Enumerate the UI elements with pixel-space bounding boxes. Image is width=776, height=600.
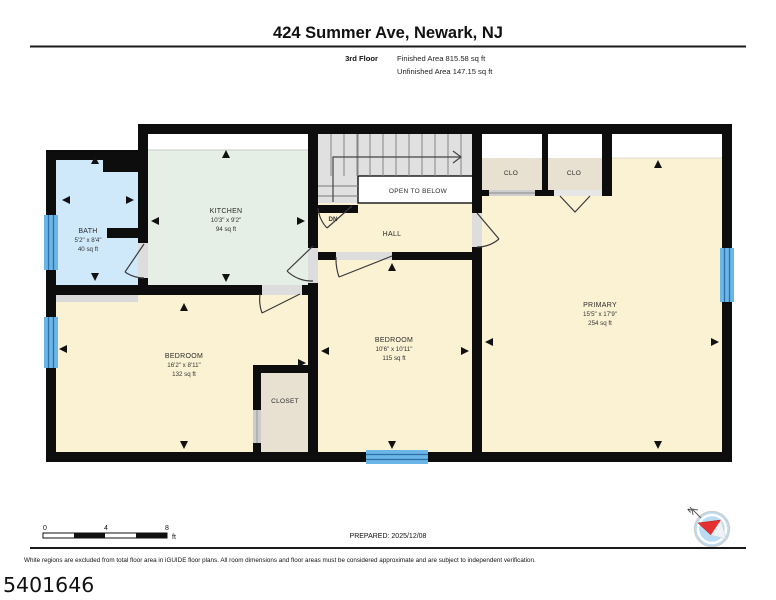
bath-floor bbox=[56, 160, 138, 285]
prepared-date: PREPARED: 2025/12/08 bbox=[350, 533, 427, 540]
clo2-threshold bbox=[554, 190, 602, 196]
wall-closet-left-b bbox=[253, 443, 261, 452]
room-area: 115 sq ft bbox=[382, 355, 406, 362]
wall-primary-lower bbox=[472, 247, 482, 452]
scale-unit: ft bbox=[172, 534, 176, 541]
room-dims: 15'5" x 17'9" bbox=[583, 311, 617, 318]
room-area: 132 sq ft bbox=[172, 371, 196, 378]
page-title: 424 Summer Ave, Newark, NJ bbox=[273, 24, 503, 42]
clo2-label: CLO bbox=[567, 170, 581, 177]
wall-bath-top bbox=[46, 150, 148, 160]
unfinished-area-label: Unfinished Area 147.15 sq ft bbox=[397, 67, 493, 76]
kitchen-doorway bbox=[308, 248, 318, 283]
room-name: BATH bbox=[78, 228, 97, 235]
closet-floor bbox=[261, 373, 308, 452]
floor-plan-page: 424 Summer Ave, Newark, NJ 3rd Floor Fin… bbox=[0, 0, 776, 600]
closet-label: CLOSET bbox=[271, 398, 299, 405]
wall-center-upper bbox=[308, 134, 318, 248]
stairs-landing bbox=[318, 176, 358, 207]
scale-bar: 0 4 8 ft bbox=[43, 525, 176, 541]
wall-clo1-stub-l bbox=[482, 190, 489, 196]
wall-hall-bedroom-a bbox=[318, 252, 336, 260]
room-area: 254 sq ft bbox=[588, 320, 612, 327]
primary-doorway bbox=[472, 213, 482, 247]
clo1-label: CLO bbox=[504, 170, 518, 177]
wall-clo2-stub-l bbox=[547, 190, 554, 196]
clo1-unfinished bbox=[482, 134, 542, 158]
header-divider bbox=[30, 46, 746, 48]
room-dims: 10'6" x 10'11" bbox=[376, 346, 413, 353]
room-name: KITCHEN bbox=[210, 208, 243, 215]
stairs-upper-run bbox=[318, 134, 472, 176]
stairs-dn-label: DN bbox=[329, 216, 338, 223]
primary-window bbox=[720, 248, 734, 302]
clo2-unfinished bbox=[547, 134, 602, 158]
bedroom-mid-window bbox=[366, 450, 428, 464]
bath-window bbox=[44, 215, 58, 270]
north-arrow-icon bbox=[692, 509, 701, 518]
floor-plan-canvas: 424 Summer Ave, Newark, NJ 3rd Floor Fin… bbox=[0, 0, 776, 600]
floor-label: 3rd Floor bbox=[345, 54, 378, 63]
scale-bar-seg2 bbox=[136, 533, 167, 538]
disclaimer-text: White regions are excluded from total fl… bbox=[24, 557, 536, 564]
room-dims: 10'3" x 9'2" bbox=[211, 217, 242, 224]
room-area: 94 sq ft bbox=[216, 226, 237, 233]
scale-bar-seg1 bbox=[74, 533, 105, 538]
wall-kitchen-bedroom-a bbox=[46, 285, 262, 295]
bedroom-left-window bbox=[44, 317, 58, 368]
wall-hall-bedroom-b bbox=[392, 252, 472, 260]
wall-top bbox=[138, 124, 732, 134]
scale-tick-4: 4 bbox=[104, 525, 108, 532]
wall-clo1-stub-r bbox=[535, 190, 547, 196]
open-to-below-label: OPEN TO BELOW bbox=[389, 188, 448, 195]
scale-tick-0: 0 bbox=[43, 525, 47, 532]
wall-clo2-right bbox=[602, 134, 612, 196]
bedroom-left-doorway bbox=[262, 285, 302, 295]
room-name: BEDROOM bbox=[375, 337, 413, 344]
hall-label: HALL bbox=[383, 231, 402, 238]
room-dims: 5'2" x 8'4" bbox=[74, 237, 101, 244]
wall-clo-divider bbox=[542, 134, 548, 196]
room-area: 40 sq ft bbox=[78, 246, 99, 253]
footer-divider bbox=[30, 547, 746, 549]
scale-tick-8: 8 bbox=[165, 525, 169, 532]
bath-sill bbox=[56, 295, 138, 302]
header: 424 Summer Ave, Newark, NJ 3rd Floor Fin… bbox=[30, 24, 746, 76]
wall-bath-stub-mid bbox=[107, 228, 148, 238]
plan-id: 5401646 bbox=[3, 573, 94, 597]
compass: N bbox=[687, 506, 730, 547]
bath-doorway bbox=[138, 243, 148, 278]
wall-left bbox=[46, 150, 56, 462]
wall-closet-top bbox=[253, 365, 313, 373]
wall-primary-upper bbox=[472, 134, 482, 213]
room-dims: 16'2" x 8'11" bbox=[167, 362, 200, 369]
finished-area-label: Finished Area 815.58 sq ft bbox=[397, 54, 486, 63]
bath-label: BATH 5'2" x 8'4" 40 sq ft bbox=[74, 228, 101, 253]
room-name: PRIMARY bbox=[583, 302, 617, 309]
room-name: BEDROOM bbox=[165, 353, 203, 360]
